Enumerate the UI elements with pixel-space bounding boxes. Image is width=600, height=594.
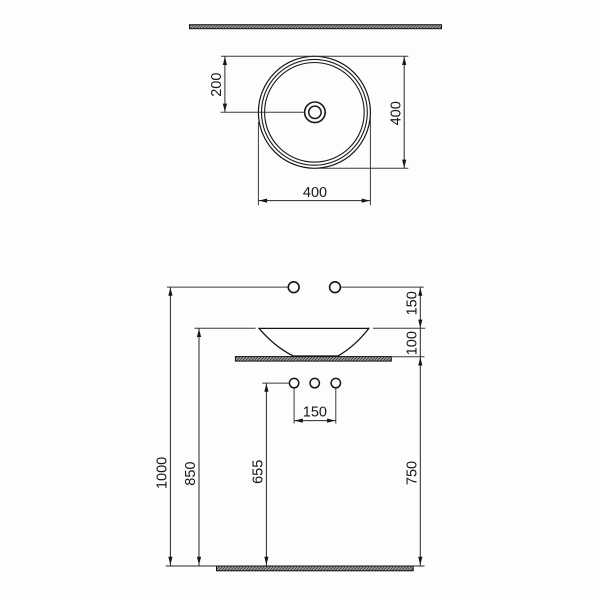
svg-text:655: 655 (251, 460, 267, 484)
svg-text:750: 750 (404, 461, 420, 485)
svg-text:100: 100 (404, 331, 420, 355)
svg-text:400: 400 (303, 185, 327, 201)
svg-text:1000: 1000 (155, 457, 171, 489)
svg-text:150: 150 (404, 291, 420, 315)
svg-text:150: 150 (303, 405, 327, 421)
svg-text:400: 400 (388, 101, 404, 125)
svg-text:200: 200 (209, 73, 225, 97)
svg-text:850: 850 (183, 461, 199, 485)
